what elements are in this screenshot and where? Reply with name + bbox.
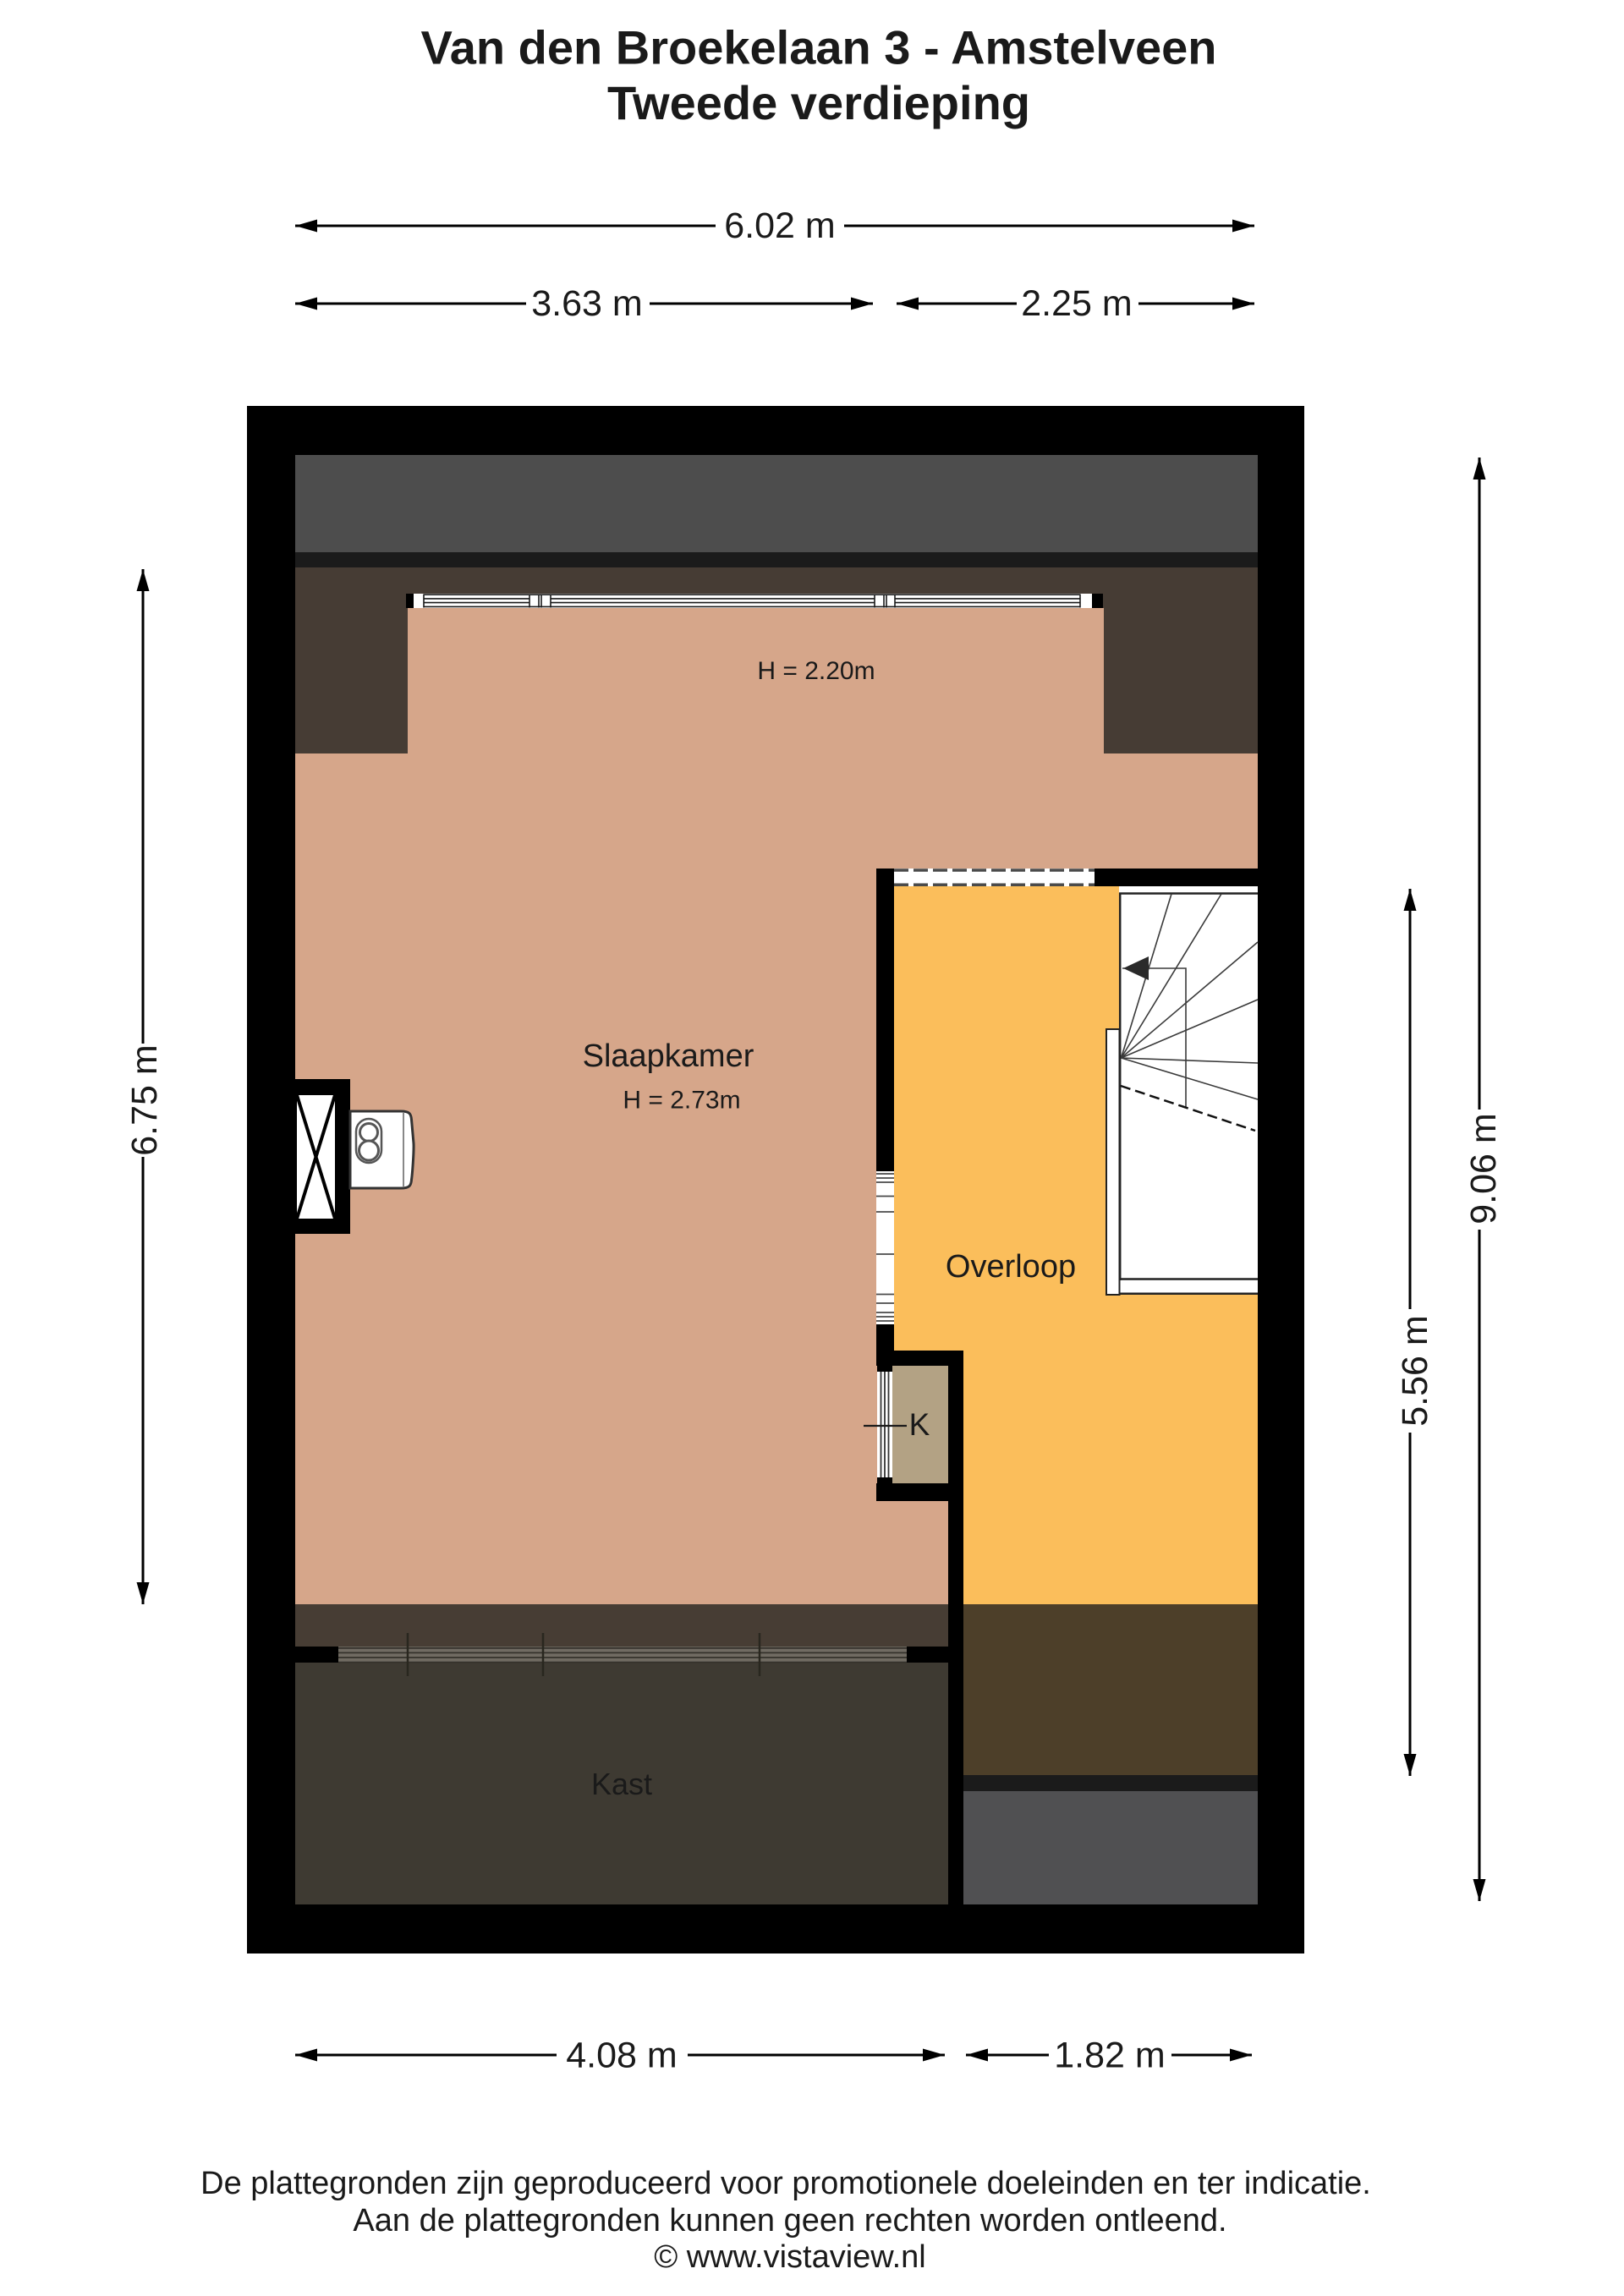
svg-text:1.82 m: 1.82 m bbox=[1054, 2036, 1165, 2076]
svg-text:Tweede verdieping: Tweede verdieping bbox=[607, 76, 1030, 129]
svg-text:Van den Broekelaan 3 - Amstelv: Van den Broekelaan 3 - Amstelveen bbox=[421, 21, 1217, 74]
svg-text:Slaapkamer: Slaapkamer bbox=[583, 1038, 754, 1074]
svg-text:6.75 m: 6.75 m bbox=[124, 1044, 165, 1155]
svg-text:Kast: Kast bbox=[591, 1767, 652, 1801]
svg-text:© www.vistaview.nl: © www.vistaview.nl bbox=[654, 2239, 926, 2275]
svg-text:De plattegronden zijn geproduc: De plattegronden zijn geproduceerd voor … bbox=[200, 2166, 1371, 2201]
svg-text:9.06 m: 9.06 m bbox=[1463, 1113, 1504, 1224]
svg-text:Aan de plattegronden kunnen ge: Aan de plattegronden kunnen geen rechten… bbox=[353, 2203, 1226, 2238]
svg-text:H = 2.20m: H = 2.20m bbox=[757, 657, 875, 685]
svg-text:5.56 m: 5.56 m bbox=[1395, 1315, 1435, 1426]
svg-text:6.02 m: 6.02 m bbox=[724, 205, 835, 246]
svg-text:3.63 m: 3.63 m bbox=[531, 283, 642, 324]
svg-text:K: K bbox=[909, 1407, 930, 1442]
svg-text:4.08 m: 4.08 m bbox=[566, 2036, 677, 2076]
svg-text:2.25 m: 2.25 m bbox=[1021, 283, 1132, 324]
svg-text:Overloop: Overloop bbox=[946, 1249, 1076, 1285]
svg-text:H = 2.73m: H = 2.73m bbox=[623, 1087, 740, 1115]
